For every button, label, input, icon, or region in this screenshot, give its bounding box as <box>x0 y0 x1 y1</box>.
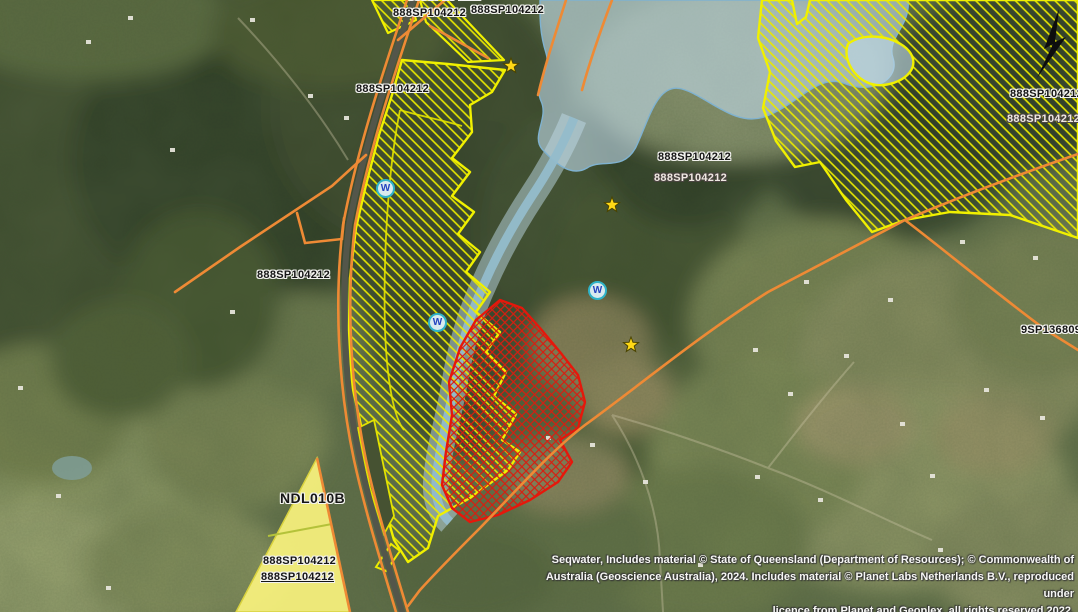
parcel-label: 888SP104212 <box>393 7 466 19</box>
water-licence-marker[interactable]: W <box>428 313 447 332</box>
parcel-label: 888SP104212 <box>257 269 330 281</box>
farm-pond <box>52 456 92 480</box>
parcel-label: 888SP104212 <box>1010 88 1078 100</box>
water-marker-letter: W <box>593 285 602 296</box>
water-licence-marker[interactable]: W <box>588 281 607 300</box>
parcel-label: 9SP136809 <box>1021 324 1078 336</box>
water-marker-letter: W <box>381 183 390 194</box>
site-label: NDL010B <box>280 492 345 504</box>
parcel-label: 888SP104212 <box>654 172 727 184</box>
parcel-label: 888SP104212 <box>263 555 336 567</box>
map-viewport[interactable]: W W W 888SP104212 888SP104212 888SP10421… <box>0 0 1078 612</box>
water-marker-letter: W <box>433 317 442 328</box>
parcel-label: 888SP104212 <box>471 4 544 16</box>
satellite-basemap <box>0 0 1078 612</box>
parcel-label: 888SP104212 <box>408 0 481 3</box>
attribution-line: Australia (Geoscience Australia), 2024. … <box>514 569 1074 603</box>
parcel-label: 888SP104212 <box>261 571 334 583</box>
parcel-label: 888SP104212 <box>1007 113 1078 125</box>
attribution-line: licence from Planet and Geoplex, all rig… <box>514 603 1074 612</box>
parcel-label: 888SP104212 <box>658 151 731 163</box>
map-attribution: Seqwater, Includes material © State of Q… <box>514 552 1074 612</box>
water-licence-marker[interactable]: W <box>376 179 395 198</box>
parcel-label: 888SP104212 <box>356 83 429 95</box>
attribution-line: Seqwater, Includes material © State of Q… <box>514 552 1074 569</box>
